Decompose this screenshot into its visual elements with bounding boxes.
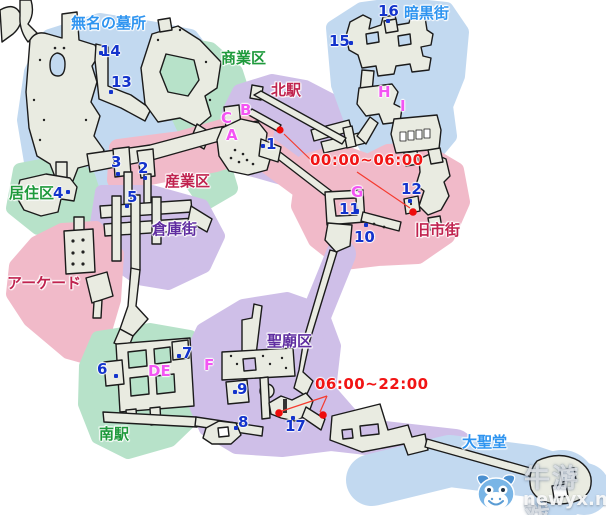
map-letter-DE: DE xyxy=(148,364,171,379)
map-letter-H: H xyxy=(378,85,391,100)
point-dot-6 xyxy=(114,374,118,378)
map-point-17: 17 xyxy=(285,419,306,434)
watermark-site: newyx.net xyxy=(523,489,606,510)
map-point-16: 16 xyxy=(378,4,399,19)
time-dot-old-town xyxy=(409,208,417,216)
map-letter-I: I xyxy=(400,99,406,114)
time-dot-south-east xyxy=(319,411,327,419)
district-label-south-station: 南駅 xyxy=(99,427,129,442)
map-point-3: 3 xyxy=(111,155,121,170)
point-dot-3 xyxy=(116,172,120,176)
map-point-4: 4 xyxy=(53,186,63,201)
map-canvas xyxy=(0,0,606,515)
time-dot-north xyxy=(276,126,283,133)
point-dot-10 xyxy=(364,223,368,227)
point-dot-9 xyxy=(233,390,237,394)
point-dot-1 xyxy=(261,144,265,148)
map-point-14: 14 xyxy=(100,44,121,59)
point-dot-14 xyxy=(99,51,103,55)
point-dot-12 xyxy=(408,199,412,203)
game-district-map: 無名の墓所 商業区 暗黒街 北駅 居住区 産業区 倉庫街 アーケード 旧市街 聖… xyxy=(0,0,606,515)
map-point-13: 13 xyxy=(111,75,132,90)
map-point-15: 15 xyxy=(329,34,350,49)
point-dot-5 xyxy=(125,204,129,208)
point-dot-4 xyxy=(66,190,70,194)
schedule-label-day: 06:00~22:00 xyxy=(315,377,429,392)
district-label-commercial: 商業区 xyxy=(221,51,266,66)
district-label-industrial: 産業区 xyxy=(165,174,210,189)
map-letter-G: G xyxy=(351,185,363,200)
map-letter-C: C xyxy=(221,111,232,126)
map-point-1: 1 xyxy=(266,137,276,152)
time-dot-south-west xyxy=(275,409,283,417)
district-label-mausoleum: 聖廟区 xyxy=(267,334,312,349)
point-dot-7 xyxy=(177,354,181,358)
district-label-old-town: 旧市街 xyxy=(415,223,460,238)
district-label-arcade: アーケード xyxy=(7,276,81,291)
map-point-10: 10 xyxy=(354,230,375,245)
map-letter-F: F xyxy=(204,358,214,373)
point-dot-17 xyxy=(291,416,295,420)
point-dot-16 xyxy=(386,19,390,23)
map-point-12: 12 xyxy=(401,182,422,197)
map-letter-A: A xyxy=(226,128,238,143)
point-dot-13 xyxy=(109,90,113,94)
district-label-tomb: 無名の墓所 xyxy=(71,16,146,31)
point-dot-8 xyxy=(234,426,238,430)
map-letter-B: B xyxy=(240,103,251,118)
point-dot-11 xyxy=(355,209,359,213)
cow-mascot-icon xyxy=(472,471,520,513)
schedule-label-night: 00:00~06:00 xyxy=(310,153,424,168)
district-label-cathedral: 大聖堂 xyxy=(462,435,507,450)
district-label-residential: 居住区 xyxy=(9,186,54,201)
map-point-9: 9 xyxy=(237,382,247,397)
map-point-2: 2 xyxy=(138,161,148,176)
map-point-7: 7 xyxy=(182,346,192,361)
district-label-dark-town: 暗黒街 xyxy=(404,6,449,21)
district-label-north-station: 北駅 xyxy=(271,83,301,98)
point-dot-15 xyxy=(349,41,353,45)
map-point-6: 6 xyxy=(97,362,107,377)
map-point-5: 5 xyxy=(127,190,137,205)
point-dot-2 xyxy=(143,176,147,180)
district-label-warehouse: 倉庫街 xyxy=(152,222,197,237)
map-point-8: 8 xyxy=(238,415,248,430)
